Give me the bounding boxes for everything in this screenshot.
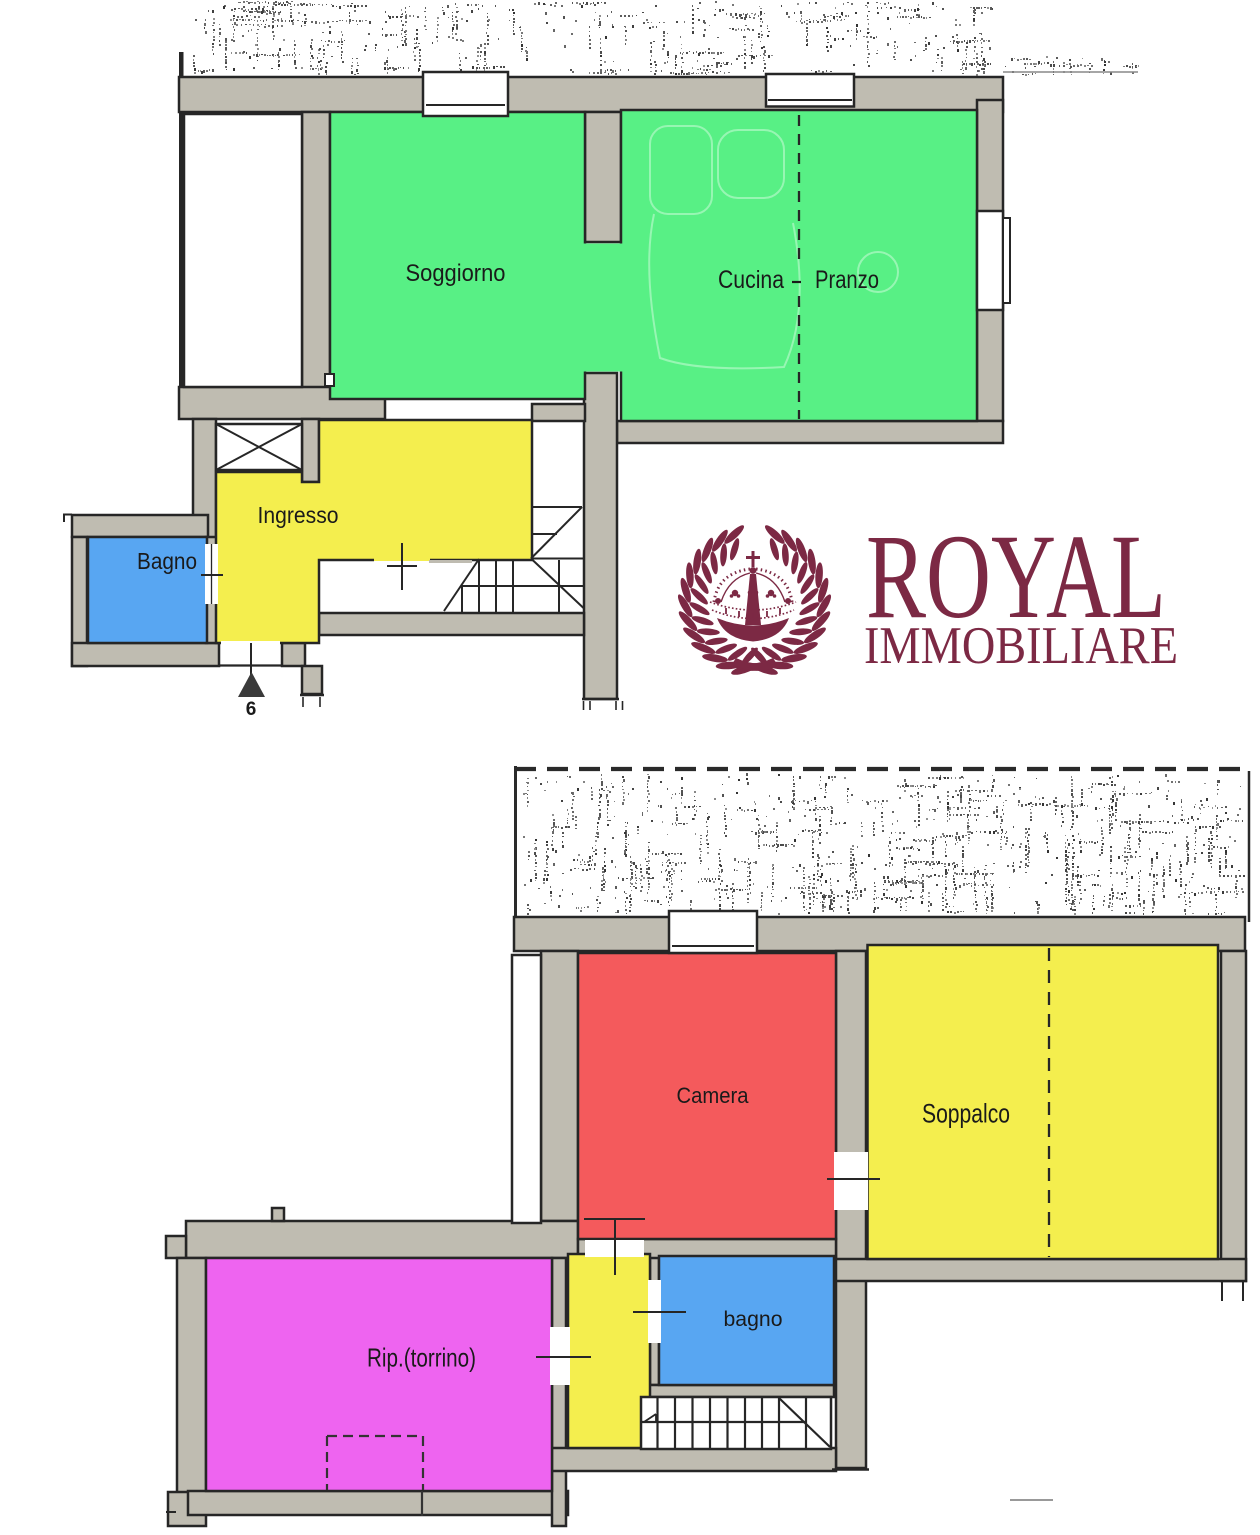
svg-text:Cucina: Cucina xyxy=(718,266,784,294)
svg-text:Bagno: Bagno xyxy=(137,548,197,574)
svg-text:6: 6 xyxy=(246,699,257,720)
svg-text:Soppalco: Soppalco xyxy=(922,1099,1010,1129)
svg-text:bagno: bagno xyxy=(724,1307,783,1331)
svg-text:Rip.(torrino): Rip.(torrino) xyxy=(367,1343,476,1373)
svg-text:Ingresso: Ingresso xyxy=(258,502,339,528)
svg-text:Soggiorno: Soggiorno xyxy=(406,260,506,287)
svg-text:IMMOBILIARE: IMMOBILIARE xyxy=(864,617,1178,675)
svg-text:Pranzo: Pranzo xyxy=(815,266,879,294)
svg-text:Camera: Camera xyxy=(677,1083,750,1108)
